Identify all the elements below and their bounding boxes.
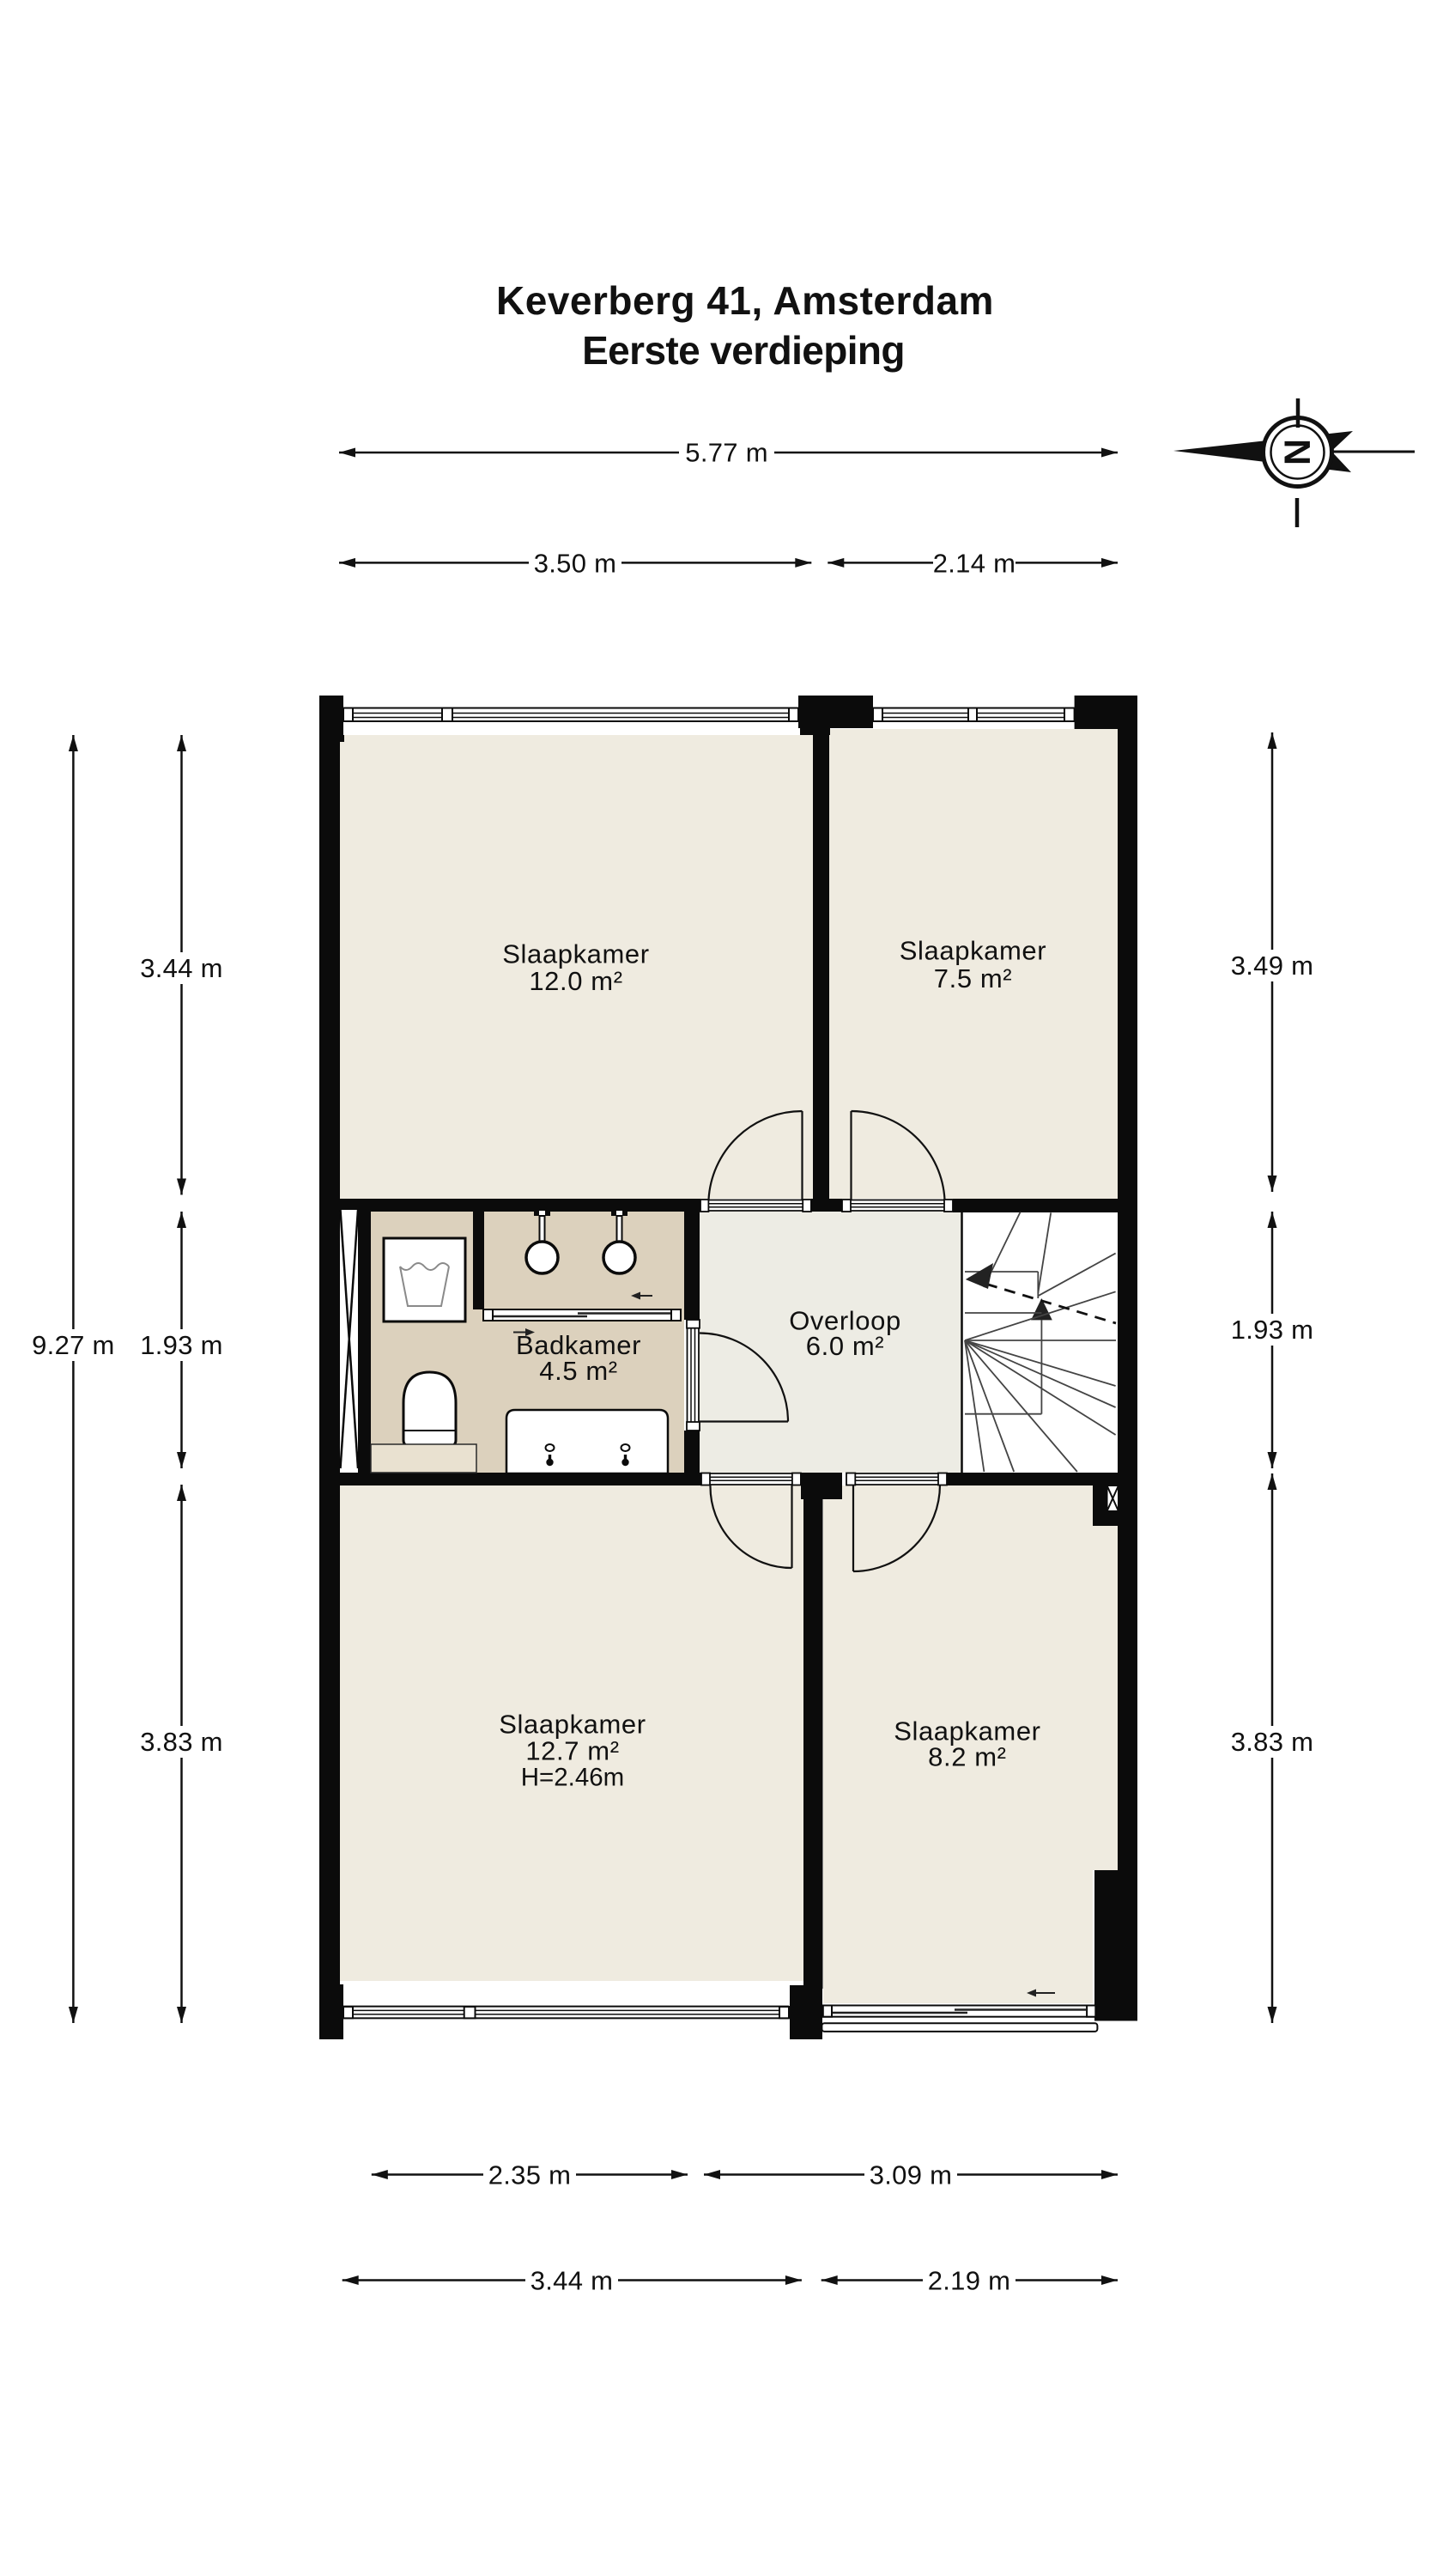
svg-text:N: N — [1276, 439, 1318, 465]
svg-text:2.35 m: 2.35 m — [488, 2160, 572, 2190]
svg-text:8.2 m²: 8.2 m² — [928, 1742, 1006, 1772]
svg-text:H=2.46m: H=2.46m — [521, 1764, 625, 1792]
svg-text:1.93 m: 1.93 m — [1231, 1315, 1314, 1345]
svg-text:3.44 m: 3.44 m — [140, 953, 223, 983]
svg-text:3.83 m: 3.83 m — [1231, 1727, 1314, 1757]
svg-text:9.27 m: 9.27 m — [32, 1330, 115, 1360]
svg-text:3.83 m: 3.83 m — [140, 1727, 223, 1757]
svg-text:Slaapkamer: Slaapkamer — [900, 936, 1046, 966]
svg-text:3.44 m: 3.44 m — [530, 2266, 614, 2296]
svg-text:6.0 m²: 6.0 m² — [806, 1331, 884, 1361]
svg-text:3.50 m: 3.50 m — [534, 549, 617, 579]
svg-text:2.14 m: 2.14 m — [933, 549, 1016, 579]
svg-text:Slaapkamer: Slaapkamer — [502, 939, 649, 969]
svg-text:2.19 m: 2.19 m — [928, 2266, 1011, 2296]
svg-text:12.0 m²: 12.0 m² — [529, 966, 622, 996]
svg-text:Eerste verdieping: Eerste verdieping — [582, 328, 905, 373]
svg-text:Slaapkamer: Slaapkamer — [499, 1710, 646, 1740]
svg-text:Keverberg 41, Amsterdam: Keverberg 41, Amsterdam — [496, 278, 994, 323]
svg-text:3.09 m: 3.09 m — [870, 2160, 953, 2190]
svg-text:1.93 m: 1.93 m — [140, 1330, 223, 1360]
svg-text:4.5 m²: 4.5 m² — [539, 1356, 617, 1386]
svg-text:5.77 m: 5.77 m — [685, 438, 768, 468]
svg-text:7.5 m²: 7.5 m² — [934, 963, 1012, 993]
svg-text:12.7 m²: 12.7 m² — [525, 1736, 619, 1766]
svg-text:3.49 m: 3.49 m — [1231, 951, 1314, 981]
